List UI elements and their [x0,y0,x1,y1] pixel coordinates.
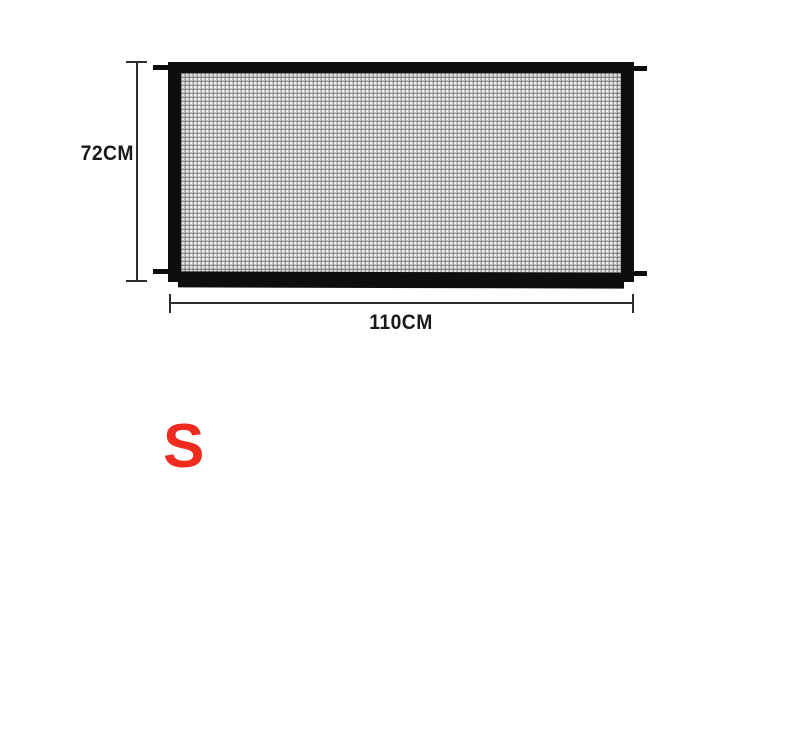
height-dimension-line [136,62,138,282]
height-dimension-cap-bottom [126,280,147,282]
width-dimension-tick-left [169,294,171,313]
size-variant-label: S [163,416,204,478]
gate-mount-tab-top-left [153,65,168,70]
width-dimension-label: 110CM [341,311,461,335]
gate-mount-tab-bottom-left [153,269,168,274]
gate-mount-tab-bottom-right [632,271,647,276]
width-dimension-tick-right [632,294,634,313]
height-dimension-cap-top [126,61,147,63]
gate-mount-tab-top-right [632,66,647,71]
product-diagram-canvas: 72CM 110CM S [0,0,787,738]
gate-mesh-panel [181,73,621,273]
width-dimension-line [169,302,634,304]
gate-frame [168,62,634,282]
gate-bottom-bar [178,271,624,288]
height-dimension-label: 72CM [75,142,134,166]
